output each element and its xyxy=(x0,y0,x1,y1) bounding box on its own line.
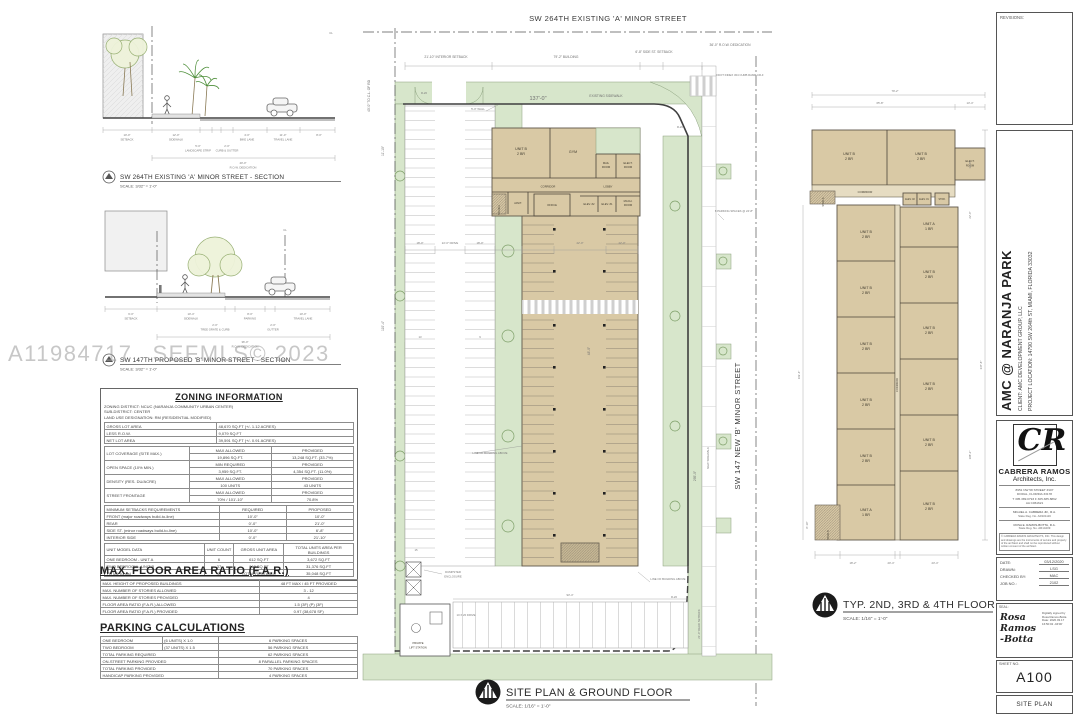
sheet-number-label: SHEET NO. xyxy=(997,661,1072,667)
svg-text:137'-0": 137'-0" xyxy=(529,96,546,102)
svg-text:TREE GRATE & CURB: TREE GRATE & CURB xyxy=(200,328,229,332)
zoning-matrix-table: LOT COVERAGE (SITE MAX.)MAX ALLOWEDPROVI… xyxy=(104,446,354,503)
registration-2b: State Reg. No. AR14209 xyxy=(997,527,1072,531)
zoning-landuse: LAND USE DESIGNATION: RM (RESIDENTIAL MO… xyxy=(104,415,354,420)
svg-text:STOR.: STOR. xyxy=(939,199,946,201)
project-location: PROJECT LOCATION: 14790 SW 264th ST, MIA… xyxy=(1028,135,1034,411)
job-value: 2102 xyxy=(1039,580,1069,586)
section-a-dimensions: 10'-0"SETBACK 12'-0"SIDEWALK 5'-0"LANDSC… xyxy=(103,127,335,170)
svg-text:40'-0" TO C.L. OF RD: 40'-0" TO C.L. OF RD xyxy=(367,79,371,112)
seal-label: SEAL: xyxy=(997,604,1072,610)
svg-text:SIDEWALK: SIDEWALK xyxy=(184,317,198,321)
svg-text:22'-0": 22'-0" xyxy=(576,241,583,245)
svg-text:65'-8": 65'-8" xyxy=(876,101,883,105)
drawing-info-box: DATE:03/12/2020 DRAWN:LSG CHECKED BY:MAC… xyxy=(996,557,1073,601)
svg-text:23'-4": 23'-4" xyxy=(931,561,938,565)
checked-label: CHECKED BY: xyxy=(1000,574,1026,579)
floor-plan-scale: SCALE: 1/16" = 1'-0" xyxy=(843,616,888,622)
svg-text:TRAVEL LANE: TRAVEL LANE xyxy=(294,317,313,321)
svg-text:79'-2" BUILDING: 79'-2" BUILDING xyxy=(554,55,579,59)
svg-text:119'-4": 119'-4" xyxy=(797,371,801,379)
car-icon xyxy=(267,98,297,116)
svg-text:ROOM: ROOM xyxy=(624,203,633,207)
svg-text:10'-0": 10'-0" xyxy=(299,312,306,316)
svg-text:ELEV. #1: ELEV. #1 xyxy=(919,199,929,201)
setbacks-table: MINIMUM SETBACKS REQUIREMENTSREQUIREDPRO… xyxy=(104,505,354,541)
zoning-information-panel: ZONING INFORMATION ZONING DISTRICT: NCUC… xyxy=(100,388,358,581)
svg-text:UNIT B: UNIT B xyxy=(915,152,927,156)
bottom-service-area: PRIVATELIFT STATION xyxy=(400,562,688,656)
svg-text:UNIT B: UNIT B xyxy=(923,382,935,386)
checked-value: MAC xyxy=(1039,573,1069,579)
svg-text:UNIT B: UNIT B xyxy=(860,342,872,346)
architect-box: CR CABRERA RAMOS Architects, Inc. 8951 N… xyxy=(996,420,1073,555)
project-title-box: AMC @ NARANJA PARK CLIENT: AMC DEVELOPME… xyxy=(996,130,1073,416)
palm-tree-icon xyxy=(179,60,219,116)
seal-box: SEAL: Rosa Ramos -Botta Digitally signed… xyxy=(996,603,1073,658)
svg-text:LIFT STATION: LIFT STATION xyxy=(409,646,427,650)
svg-text:JANIT.: JANIT. xyxy=(514,201,522,205)
svg-text:UNIT B: UNIT B xyxy=(923,502,935,506)
floor-plan-title-text: TYP. 2ND, 3RD & 4TH FLOOR xyxy=(843,599,995,611)
svg-text:2 BR: 2 BR xyxy=(925,275,933,279)
svg-text:UNIT B: UNIT B xyxy=(515,147,527,151)
svg-text:R-20: R-20 xyxy=(671,595,678,599)
svg-text:UNIT B: UNIT B xyxy=(860,286,872,290)
svg-text:STAIR A: STAIR A xyxy=(497,205,501,215)
svg-text:10 X 20 DRIVE: 10 X 20 DRIVE xyxy=(457,613,476,617)
north-arrow-icon xyxy=(476,680,501,705)
svg-text:8'-10": 8'-10" xyxy=(805,521,809,528)
svg-text:18'-2": 18'-2" xyxy=(849,561,856,565)
typical-floor-plan-drawing: 79'-2" 65'-8" 13'-4" UNIT B2 BR xyxy=(795,85,995,630)
svg-text:SIDEWALK: SIDEWALK xyxy=(169,138,183,142)
svg-text:STAIR B: STAIR B xyxy=(827,530,830,540)
svg-text:MAIL: MAIL xyxy=(603,161,610,165)
svg-text:CURB & GUTTER: CURB & GUTTER xyxy=(216,149,239,153)
pedestrian-icon xyxy=(163,96,171,116)
svg-text:ELECT.: ELECT. xyxy=(623,161,632,165)
far-title: MAX. FLOOR AREA RATIO (F.A.R.) xyxy=(100,565,358,577)
svg-text:ROOM: ROOM xyxy=(602,165,611,169)
svg-text:22'-0": 22'-0" xyxy=(618,241,625,245)
svg-text:GYM: GYM xyxy=(569,150,577,154)
svg-text:UNIT B: UNIT B xyxy=(843,152,855,156)
svg-text:UNIT B: UNIT B xyxy=(923,270,935,274)
svg-text:2'-0": 2'-0" xyxy=(270,323,276,327)
drawing-sheet: A11984717SEFMLS© 2023 xyxy=(0,0,1077,720)
copyright-note: © CABRERA RAMOS ARCHITECTS, INC. This de… xyxy=(999,533,1070,550)
svg-text:R.O.W. DEDICATION: R.O.W. DEDICATION xyxy=(230,166,257,170)
svg-text:LOBBY: LOBBY xyxy=(604,185,613,189)
svg-text:2 BR: 2 BR xyxy=(862,459,870,463)
svg-text:6'-0": 6'-0" xyxy=(128,312,134,316)
svg-text:2 BR: 2 BR xyxy=(845,157,853,161)
svg-text:11'-0": 11'-0" xyxy=(280,133,287,137)
svg-text:CORRIDOR: CORRIDOR xyxy=(541,185,556,189)
svg-text:GUTTER: GUTTER xyxy=(267,328,279,332)
svg-text:ROOM: ROOM xyxy=(624,165,633,169)
svg-text:ELEV. #2: ELEV. #2 xyxy=(583,202,595,206)
site-plan-title-text: SITE PLAN & GROUND FLOOR xyxy=(506,687,673,699)
svg-text:18'-0": 18'-0" xyxy=(416,241,423,245)
svg-text:PRIVATE: PRIVATE xyxy=(412,641,423,645)
svg-text:LINE OF BUILDING ABOVE: LINE OF BUILDING ABOVE xyxy=(650,577,685,581)
section-b-building-mass xyxy=(105,211,167,271)
date-label: DATE: xyxy=(1000,560,1011,565)
project-title: AMC @ NARANJA PARK xyxy=(999,135,1014,411)
site-plan-title: SITE PLAN & GROUND FLOOR SCALE: 1/16" = … xyxy=(476,680,691,710)
svg-text:ENCLOSURE: ENCLOSURE xyxy=(444,575,462,579)
sheet-number-box: SHEET NO. A100 xyxy=(996,660,1073,693)
drawn-value: LSG xyxy=(1039,566,1069,572)
far-panel: MAX. FLOOR AREA RATIO (F.A.R.) MAX. HEIG… xyxy=(100,558,358,679)
svg-text:SETBACK: SETBACK xyxy=(124,317,137,321)
svg-text:2 BR: 2 BR xyxy=(862,347,870,351)
parking-calc-title: PARKING CALCULATIONS xyxy=(100,622,358,634)
svg-text:ELEV. #2: ELEV. #2 xyxy=(905,199,915,201)
svg-text:1 BR: 1 BR xyxy=(925,227,933,231)
svg-text:MACH.: MACH. xyxy=(624,199,633,203)
drawn-label: DRAWN: xyxy=(1000,567,1016,572)
floor-plan-dimensions-top: 79'-2" 65'-8" 13'-4" xyxy=(812,89,985,110)
svg-text:22'-0": 22'-0" xyxy=(968,211,972,218)
section-b-scale: SCALE: 3/32" = 1'-0" xyxy=(120,367,158,372)
date-value: 03/12/2020 xyxy=(1039,559,1069,565)
centerline-mark: CL xyxy=(329,31,333,35)
svg-text:10'-0": 10'-0" xyxy=(123,133,130,137)
svg-text:UNIT B: UNIT B xyxy=(860,230,872,234)
svg-text:48'-0": 48'-0" xyxy=(587,346,591,355)
svg-text:LINE OF BUILDING ABOVE: LINE OF BUILDING ABOVE xyxy=(472,451,507,455)
firm-logo-letters: CR xyxy=(1018,423,1067,458)
svg-text:2 BR: 2 BR xyxy=(862,403,870,407)
svg-text:LANDSCAPE STRIP: LANDSCAPE STRIP xyxy=(185,149,211,153)
svg-text:13: 13 xyxy=(418,335,422,339)
svg-text:20'-4": 20'-4" xyxy=(887,561,894,565)
svg-text:12'-0": 12'-0" xyxy=(172,133,179,137)
section-a-title: SW 264TH EXISTING 'A' MINOR STREET - SEC… xyxy=(103,171,341,189)
zoning-title: ZONING INFORMATION xyxy=(104,392,354,402)
svg-text:UNIT B: UNIT B xyxy=(860,398,872,402)
svg-text:110'-4": 110'-4" xyxy=(381,320,385,331)
svg-text:15: 15 xyxy=(414,548,418,552)
svg-text:295'-0": 295'-0" xyxy=(693,470,697,481)
svg-text:22'-0" DRIVE: 22'-0" DRIVE xyxy=(442,241,459,245)
ground-line xyxy=(105,293,330,299)
svg-text:PARKING: PARKING xyxy=(244,317,256,321)
svg-text:2 BR: 2 BR xyxy=(925,387,933,391)
svg-text:188'-2": 188'-2" xyxy=(968,451,972,460)
floor-plan-building: UNIT B2 BR UNIT B2 BR ELECT.ROOM CORRIDO… xyxy=(810,130,985,540)
svg-text:ELEV. #1: ELEV. #1 xyxy=(601,202,613,206)
svg-text:8 PARKING SPACES @ 24'-8": 8 PARKING SPACES @ 24'-8" xyxy=(715,209,753,213)
svg-text:STAIR A: STAIR A xyxy=(822,197,825,206)
mls-brand: SEFMLS© 2023 xyxy=(152,341,329,366)
project-client: CLIENT: AMC DEVELOPMENT GROUP, LLC xyxy=(1018,135,1024,411)
svg-text:OFFICE: OFFICE xyxy=(547,203,557,207)
svg-text:21'-0" REAR SETBACK: 21'-0" REAR SETBACK xyxy=(697,609,701,639)
svg-text:1 BR: 1 BR xyxy=(862,513,870,517)
car-icon xyxy=(265,277,295,295)
mls-listing-id: A11984717 xyxy=(8,341,132,366)
firm-license: AA C061621 xyxy=(997,501,1072,505)
svg-text:DUMPSTER: DUMPSTER xyxy=(445,570,461,574)
svg-text:8'-0": 8'-0" xyxy=(316,133,322,137)
firm-name: CABRERA RAMOS xyxy=(997,467,1072,476)
svg-text:13'-8": 13'-8" xyxy=(968,161,972,168)
svg-text:UNIT B: UNIT B xyxy=(923,438,935,442)
svg-text:93'-4": 93'-4" xyxy=(566,593,573,597)
sheet-name-box: SITE PLAN xyxy=(996,695,1073,714)
svg-text:EXISTING SIDEWALK: EXISTING SIDEWALK xyxy=(589,94,623,98)
job-label: JOB NO.: xyxy=(1000,581,1017,586)
svg-text:8'-0": 8'-0" xyxy=(247,312,253,316)
svg-text:2 BR: 2 BR xyxy=(925,331,933,335)
svg-text:2 BR: 2 BR xyxy=(917,157,925,161)
registration-1b: State Reg. No. AR101116 xyxy=(997,515,1072,519)
street-name-top: SW 264TH EXISTING 'A' MINOR STREET xyxy=(529,14,687,23)
digital-signature-note: Digitally signed by Rosa Ramos-Botta Dat… xyxy=(1042,612,1070,627)
centerline-mark: CL xyxy=(283,228,287,232)
svg-text:5'-0" WALL: 5'-0" WALL xyxy=(471,107,485,111)
mls-watermark: A11984717SEFMLS© 2023 xyxy=(8,341,350,367)
svg-text:UNIT B: UNIT B xyxy=(923,326,935,330)
svg-text:BIKE LANE: BIKE LANE xyxy=(240,138,255,142)
site-plan-drawing: SW 264TH EXISTING 'A' MINOR STREET SW 14… xyxy=(358,6,778,712)
svg-text:21'-10" INTERIOR SETBACK: 21'-10" INTERIOR SETBACK xyxy=(424,55,468,59)
section-a-scale: SCALE: 3/32" = 1'-0" xyxy=(120,184,158,189)
parking-calc-table: ONE BEDROOM(6 UNITS) X 1.06 PARKING SPAC… xyxy=(100,636,358,679)
lot-area-table: GROSS LOT AREA48,670 SQ.FT (+/- 1.12 ACR… xyxy=(104,422,354,444)
svg-text:TRAVEL LANE: TRAVEL LANE xyxy=(274,138,293,142)
site-plan-scale: SCALE: 1/16" = 1'-0" xyxy=(506,704,551,710)
signature: Rosa Ramos -Botta xyxy=(1000,613,1042,646)
svg-text:10'-4": 10'-4" xyxy=(187,312,194,316)
svg-text:2'-0": 2'-0" xyxy=(212,323,218,327)
sheet-name: SITE PLAN xyxy=(1016,701,1052,708)
section-a-drawing: CL 10'-0"SETBACK 12'-0"SIDEWALK 5'-0"LAN… xyxy=(95,12,345,197)
firm-logo-icon: CR xyxy=(1013,424,1057,466)
revisions-box: REVISIONS: xyxy=(996,12,1073,125)
svg-text:40'-0": 40'-0" xyxy=(239,161,246,165)
svg-text:2'-0": 2'-0" xyxy=(224,144,230,148)
north-arrow-icon xyxy=(813,593,838,618)
svg-text:R-20: R-20 xyxy=(677,125,684,129)
svg-text:CORRIDOR: CORRIDOR xyxy=(858,190,873,194)
svg-text:337'-8": 337'-8" xyxy=(979,361,983,370)
svg-text:2 BR: 2 BR xyxy=(925,507,933,511)
svg-text:UNIT A: UNIT A xyxy=(860,508,872,512)
floor-plan-title: TYP. 2ND, 3RD & 4TH FLOOR SCALE: 1/16" =… xyxy=(813,593,996,623)
svg-text:R-20: R-20 xyxy=(421,91,428,95)
far-table: MAX. HEIGHT OF PROPOSED BUILDINGS48 FT M… xyxy=(100,579,358,615)
svg-text:FDOT INDEX 304 CURB RAMP CR-F: FDOT INDEX 304 CURB RAMP CR-F xyxy=(716,73,764,77)
svg-text:2 BR: 2 BR xyxy=(517,152,525,156)
svg-text:5'-0": 5'-0" xyxy=(195,144,201,148)
svg-text:2 BR: 2 BR xyxy=(862,291,870,295)
street-name-right: SW 147 NEW 'B' MINOR STREET xyxy=(733,362,742,489)
section-a-title-text: SW 264TH EXISTING 'A' MINOR STREET - SEC… xyxy=(120,174,284,181)
svg-text:CORRIDOR: CORRIDOR xyxy=(895,378,899,392)
svg-text:36'-0" R.O.W. DEDICATION: 36'-0" R.O.W. DEDICATION xyxy=(710,43,752,47)
svg-text:SETBACK: SETBACK xyxy=(120,138,133,142)
svg-text:UNIT A: UNIT A xyxy=(923,222,935,226)
sheet-number: A100 xyxy=(997,669,1072,685)
firm-name-2: Architects, Inc. xyxy=(997,476,1072,483)
svg-text:4'-0": 4'-0" xyxy=(244,133,250,137)
svg-text:79'-2": 79'-2" xyxy=(891,89,898,93)
svg-text:2 BR: 2 BR xyxy=(925,443,933,447)
pedestrian-icon xyxy=(181,275,189,295)
svg-text:6'-8" SIDE ST. SETBACK: 6'-8" SIDE ST. SETBACK xyxy=(635,50,673,54)
svg-text:NEW SIDEWALK: NEW SIDEWALK xyxy=(706,447,710,469)
svg-text:18'-0": 18'-0" xyxy=(476,241,483,245)
svg-text:UNIT B: UNIT B xyxy=(860,454,872,458)
revisions-label: REVISIONS: xyxy=(997,13,1072,22)
tree-icon xyxy=(188,237,242,295)
svg-text:11'-10": 11'-10" xyxy=(381,145,385,156)
svg-text:2 BR: 2 BR xyxy=(862,235,870,239)
svg-text:13'-4": 13'-4" xyxy=(966,101,973,105)
